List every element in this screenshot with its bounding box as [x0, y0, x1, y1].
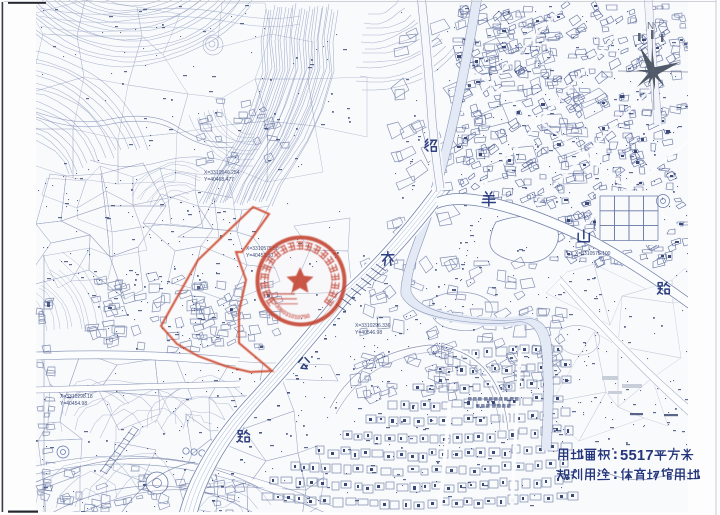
svg-text:X=3310546.254: X=3310546.254 [204, 170, 240, 176]
svg-text:X=3310575.100: X=3310575.100 [575, 251, 611, 257]
svg-text:Y=40454.98: Y=40454.98 [60, 401, 87, 407]
svg-text:Y=40468.477: Y=40468.477 [204, 177, 234, 183]
svg-text:N: N [647, 21, 654, 32]
svg-text:5: 5 [620, 448, 628, 464]
svg-text:7: 7 [645, 448, 653, 464]
svg-text:X=3310298.18: X=3310298.18 [60, 394, 93, 400]
svg-text:Y=40546.98: Y=40546.98 [355, 330, 382, 336]
svg-text:1: 1 [637, 448, 645, 464]
svg-text:X=3310296.336: X=3310296.336 [355, 323, 391, 329]
svg-text:5: 5 [629, 448, 637, 464]
